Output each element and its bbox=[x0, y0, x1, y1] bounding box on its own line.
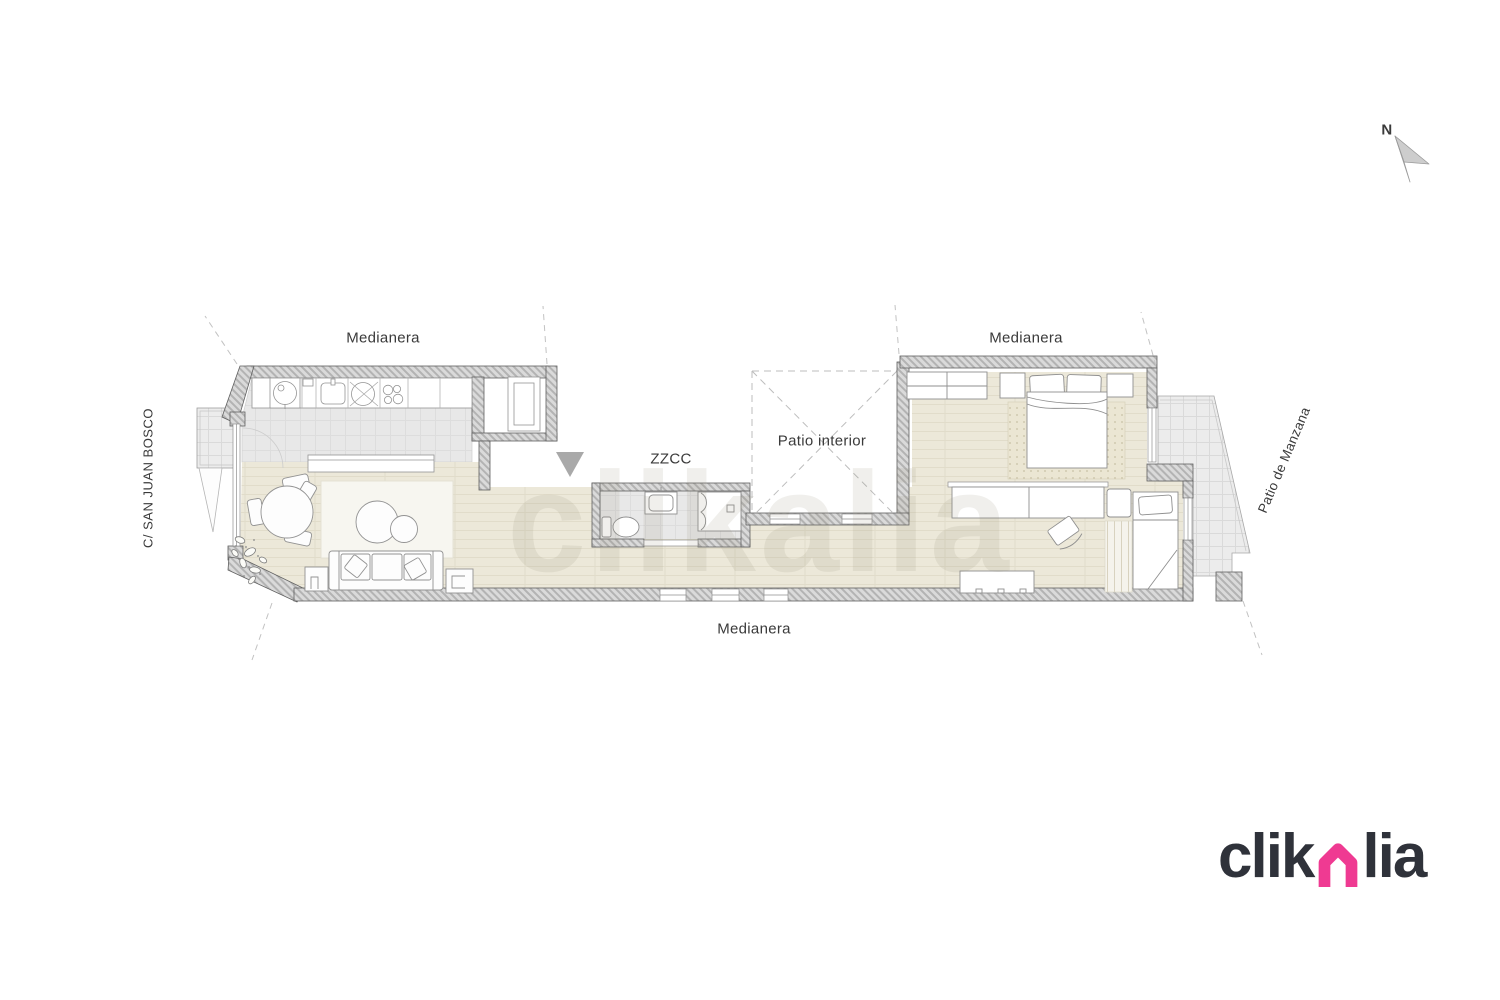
nightstand-right bbox=[1107, 374, 1133, 397]
left-roof-taper bbox=[199, 468, 222, 532]
washing-machine bbox=[270, 378, 300, 409]
logo-text-left: clik bbox=[1218, 826, 1313, 888]
toilet bbox=[602, 517, 639, 537]
floorplan-page: Medianera Medianera Medianera ZZCC Patio… bbox=[0, 0, 1500, 1000]
label-zzcc: ZZCC bbox=[650, 451, 691, 468]
room-divider bbox=[948, 482, 1108, 487]
label-street: C/ SAN JUAN BOSCO bbox=[141, 408, 156, 548]
dining-table bbox=[261, 486, 313, 538]
pass-through-cabinet bbox=[308, 455, 434, 472]
logo-text-right: lia bbox=[1362, 826, 1425, 888]
wall-top-right-block bbox=[900, 356, 1157, 368]
wall-bath-top bbox=[592, 483, 750, 491]
label-medianera-top-right: Medianera bbox=[989, 330, 1063, 347]
clikalia-logo: clik lia bbox=[1218, 826, 1425, 888]
wall-right-upper bbox=[1147, 368, 1157, 408]
desk bbox=[952, 487, 1104, 518]
bath-door-threshold bbox=[644, 540, 698, 546]
nightstand-2 bbox=[1107, 489, 1131, 517]
side-table-right bbox=[446, 569, 473, 593]
runner-rug bbox=[1105, 521, 1132, 592]
label-medianera-top-left: Medianera bbox=[346, 330, 420, 347]
single-bed bbox=[1133, 492, 1178, 589]
shower bbox=[698, 492, 741, 531]
entry-arrow-icon bbox=[556, 452, 584, 477]
sofa bbox=[329, 551, 443, 590]
label-patio-interior: Patio interior bbox=[778, 433, 866, 450]
wall-kitchen-jog bbox=[472, 377, 484, 441]
wall-nook-right bbox=[546, 366, 557, 441]
compass-icon bbox=[1395, 136, 1429, 182]
entry-closet bbox=[508, 377, 540, 431]
side-table-left bbox=[305, 567, 328, 591]
label-medianera-bottom: Medianera bbox=[717, 621, 791, 638]
nightstand-left bbox=[1000, 373, 1025, 398]
wall-bath-left bbox=[592, 483, 600, 547]
dresser bbox=[960, 571, 1034, 593]
double-bed bbox=[1027, 392, 1107, 468]
wall-terrace-end bbox=[1216, 572, 1242, 601]
wall-bath-bottom-l bbox=[592, 539, 644, 547]
wall-nook-bottom bbox=[472, 433, 557, 441]
coffee-table-small bbox=[391, 516, 418, 543]
wall-switch bbox=[303, 379, 313, 386]
wardrobe bbox=[907, 372, 987, 399]
logo-house-icon bbox=[1317, 842, 1359, 887]
wall-right-jog bbox=[1147, 464, 1193, 481]
label-north: N bbox=[1381, 122, 1392, 139]
coffee-table bbox=[356, 501, 398, 543]
wall-corridor-left bbox=[479, 441, 490, 490]
wall-top-left-block bbox=[247, 366, 548, 378]
